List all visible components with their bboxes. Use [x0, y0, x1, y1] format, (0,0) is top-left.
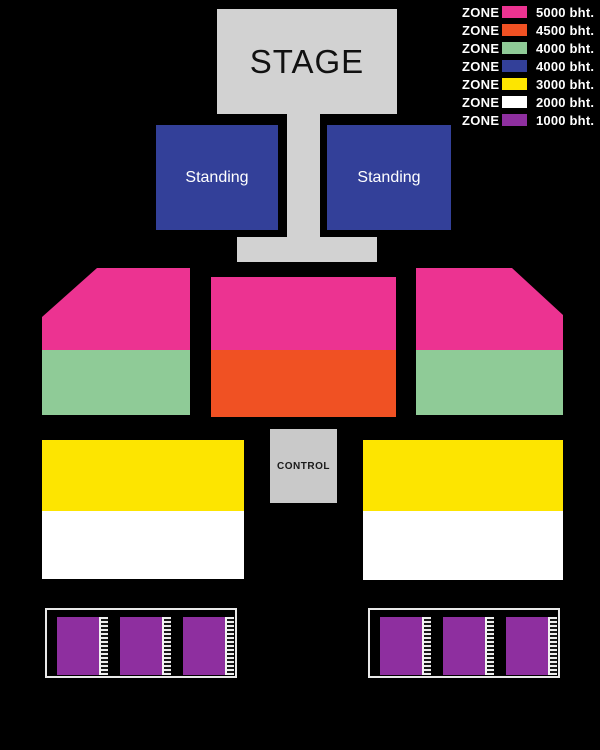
- zone-right-2000[interactable]: [363, 511, 563, 580]
- zone-frame-bottom-right: [368, 608, 560, 678]
- legend-zone-label: ZONE: [462, 95, 502, 110]
- zone-left-5000[interactable]: [42, 268, 190, 350]
- zone-right-4000[interactable]: [416, 350, 563, 415]
- seating-rear-left: [42, 440, 244, 579]
- zone-frame-bottom-left: [45, 608, 237, 678]
- seating-center: [211, 277, 396, 417]
- zone-bottom-right-1000-2[interactable]: [443, 617, 485, 675]
- legend-price: 3000 bht.: [536, 77, 594, 92]
- stage: STAGE: [217, 9, 397, 114]
- control-booth: CONTROL: [270, 429, 337, 503]
- legend-row: ZONE 1000 bht.: [462, 114, 594, 126]
- stairs-strip: [485, 617, 494, 675]
- stairs-strip: [162, 617, 171, 675]
- legend-swatch-4500: [502, 24, 527, 36]
- legend-swatch-3000: [502, 78, 527, 90]
- legend-price: 5000 bht.: [536, 5, 594, 20]
- zone-right-5000[interactable]: [416, 268, 563, 350]
- legend-swatch-1000: [502, 114, 527, 126]
- legend-row: ZONE 2000 bht.: [462, 96, 594, 108]
- legend-swatch-2000: [502, 96, 527, 108]
- seating-rear-right: [363, 440, 563, 580]
- standing-zone-right[interactable]: Standing: [327, 125, 451, 230]
- legend-zone-label: ZONE: [462, 77, 502, 92]
- legend-row: ZONE 5000 bht.: [462, 6, 594, 18]
- legend-price: 2000 bht.: [536, 95, 594, 110]
- legend-zone-label: ZONE: [462, 59, 502, 74]
- legend-swatch-5000: [502, 6, 527, 18]
- seating-wing-left: [42, 268, 190, 415]
- stage-label: STAGE: [250, 43, 364, 81]
- purple-block-group: [183, 617, 234, 675]
- legend-price: 4500 bht.: [536, 23, 594, 38]
- legend-zone-label: ZONE: [462, 23, 502, 38]
- zone-bottom-left-1000-1[interactable]: [57, 617, 99, 675]
- zone-center-4500[interactable]: [211, 350, 396, 417]
- legend-row: ZONE 3000 bht.: [462, 78, 594, 90]
- zone-left-4000[interactable]: [42, 350, 190, 415]
- standing-label: Standing: [357, 169, 420, 187]
- control-label: CONTROL: [277, 461, 330, 472]
- zone-bottom-left-1000-3[interactable]: [183, 617, 225, 675]
- legend-swatch-4000-blue: [502, 60, 527, 72]
- legend-zone-label: ZONE: [462, 5, 502, 20]
- stairs-strip: [225, 617, 234, 675]
- stairs-strip: [422, 617, 431, 675]
- price-legend: ZONE 5000 bht. ZONE 4500 bht. ZONE 4000 …: [462, 6, 594, 132]
- legend-swatch-4000-green: [502, 42, 527, 54]
- stage-platform: [237, 237, 377, 262]
- zone-left-2000[interactable]: [42, 511, 244, 579]
- seating-wing-right: [416, 268, 563, 415]
- stage-runway: [287, 113, 320, 238]
- legend-price: 4000 bht.: [536, 59, 594, 74]
- zone-center-5000[interactable]: [211, 277, 396, 350]
- legend-price: 1000 bht.: [536, 113, 594, 128]
- stairs-strip: [99, 617, 108, 675]
- legend-price: 4000 bht.: [536, 41, 594, 56]
- zone-bottom-right-1000-1[interactable]: [380, 617, 422, 675]
- legend-row: ZONE 4000 bht.: [462, 42, 594, 54]
- legend-row: ZONE 4000 bht.: [462, 60, 594, 72]
- zone-bottom-right-1000-3[interactable]: [506, 617, 548, 675]
- purple-block-group: [380, 617, 431, 675]
- standing-label: Standing: [185, 169, 248, 187]
- zone-bottom-left-1000-2[interactable]: [120, 617, 162, 675]
- legend-zone-label: ZONE: [462, 113, 502, 128]
- legend-zone-label: ZONE: [462, 41, 502, 56]
- zone-left-3000[interactable]: [42, 440, 244, 511]
- standing-zone-left[interactable]: Standing: [156, 125, 278, 230]
- venue-seating-map: ZONE 5000 bht. ZONE 4500 bht. ZONE 4000 …: [0, 0, 600, 750]
- legend-row: ZONE 4500 bht.: [462, 24, 594, 36]
- purple-block-group: [506, 617, 557, 675]
- zone-right-3000[interactable]: [363, 440, 563, 511]
- purple-block-group: [120, 617, 171, 675]
- stairs-strip: [548, 617, 557, 675]
- purple-block-group: [57, 617, 108, 675]
- purple-block-group: [443, 617, 494, 675]
